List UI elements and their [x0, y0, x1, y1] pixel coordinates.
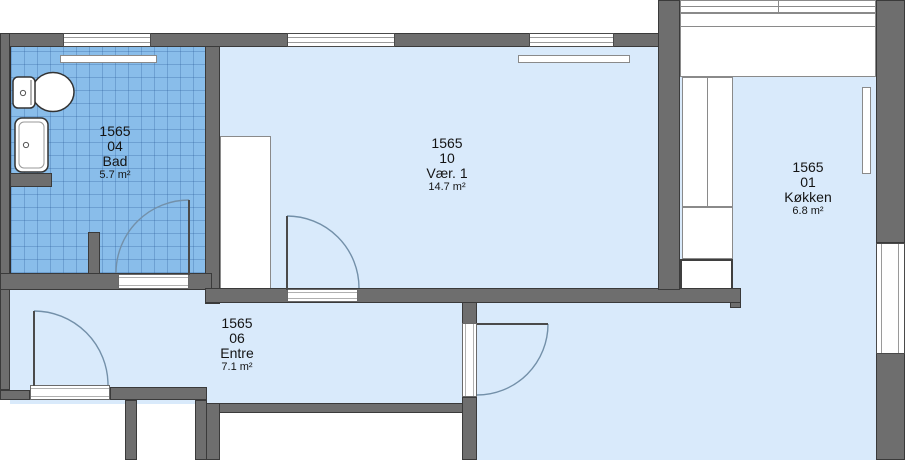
bathroom-door-threshold [118, 274, 189, 289]
wall-bath-room1 [205, 46, 220, 304]
room1-door-threshold [287, 289, 358, 302]
room-area: 14.7 m² [426, 181, 467, 194]
room1-radiator [518, 55, 630, 63]
room-label-vaer1: 1565 10 Vær. 1 14.7 m² [426, 136, 467, 194]
wall-right-upper [876, 0, 905, 243]
wall-entre-bottom-left [205, 403, 220, 460]
room-name: Vær. 1 [426, 166, 467, 181]
wall-left [0, 33, 10, 390]
bathroom-radiator [60, 55, 157, 63]
wall-kitchen-lip [730, 302, 741, 308]
kitchen-cabinet-tall-right [707, 77, 733, 207]
room-number: 04 [99, 139, 130, 154]
room1-window-1 [287, 33, 395, 47]
room-label-entre: 1565 06 Entre 7.1 m² [220, 316, 253, 374]
floor-plan: 1565 04 Bad 5.7 m² 1565 10 Vær. 1 14.7 m… [0, 0, 905, 460]
wall-kitchen-left [658, 0, 680, 290]
room1-window-2 [529, 33, 614, 47]
wall-right-lower [876, 353, 905, 460]
kitchen-counter [680, 13, 876, 77]
room-name: Køkken [784, 190, 831, 205]
living-window [876, 243, 905, 354]
room-unit: 1565 [426, 136, 467, 151]
kitchen-appliance [680, 259, 733, 290]
bathroom-window [63, 33, 151, 47]
entrance-door-threshold [30, 385, 110, 400]
room-label-bad: 1565 04 Bad 5.7 m² [99, 124, 130, 182]
wall-below-2 [195, 400, 207, 460]
room-unit: 1565 [99, 124, 130, 139]
wall-entry-block [110, 387, 207, 400]
room-name: Bad [99, 154, 130, 169]
living-floor [463, 302, 877, 460]
room-area: 7.1 m² [220, 361, 253, 374]
wall-entre-living-lower [462, 397, 477, 460]
room-number: 06 [220, 331, 253, 346]
wall-entre-living-stub [462, 302, 477, 324]
room1-wardrobe [220, 136, 271, 289]
kitchen-top-window-band [680, 0, 876, 13]
wall-bath-stub-horizontal [10, 173, 52, 187]
wall-entry-left [0, 390, 30, 400]
kitchen-cabinet-tall-left [682, 77, 708, 207]
room-name: Entre [220, 346, 253, 361]
room-label-kokken: 1565 01 Køkken 6.8 m² [784, 160, 831, 218]
room-number: 10 [426, 151, 467, 166]
room-number: 01 [784, 175, 831, 190]
wall-entre-bottom [205, 403, 463, 413]
room-area: 6.8 m² [784, 205, 831, 218]
wall-below-1 [125, 400, 137, 460]
wall-room1-bottom [205, 288, 741, 303]
wall-bath-stub-vertical [88, 232, 100, 274]
kitchen-cabinet-mid [682, 207, 733, 259]
room-unit: 1565 [220, 316, 253, 331]
kitchen-radiator [862, 87, 871, 174]
living-door-threshold [462, 323, 477, 397]
room-unit: 1565 [784, 160, 831, 175]
room-area: 5.7 m² [99, 169, 130, 182]
